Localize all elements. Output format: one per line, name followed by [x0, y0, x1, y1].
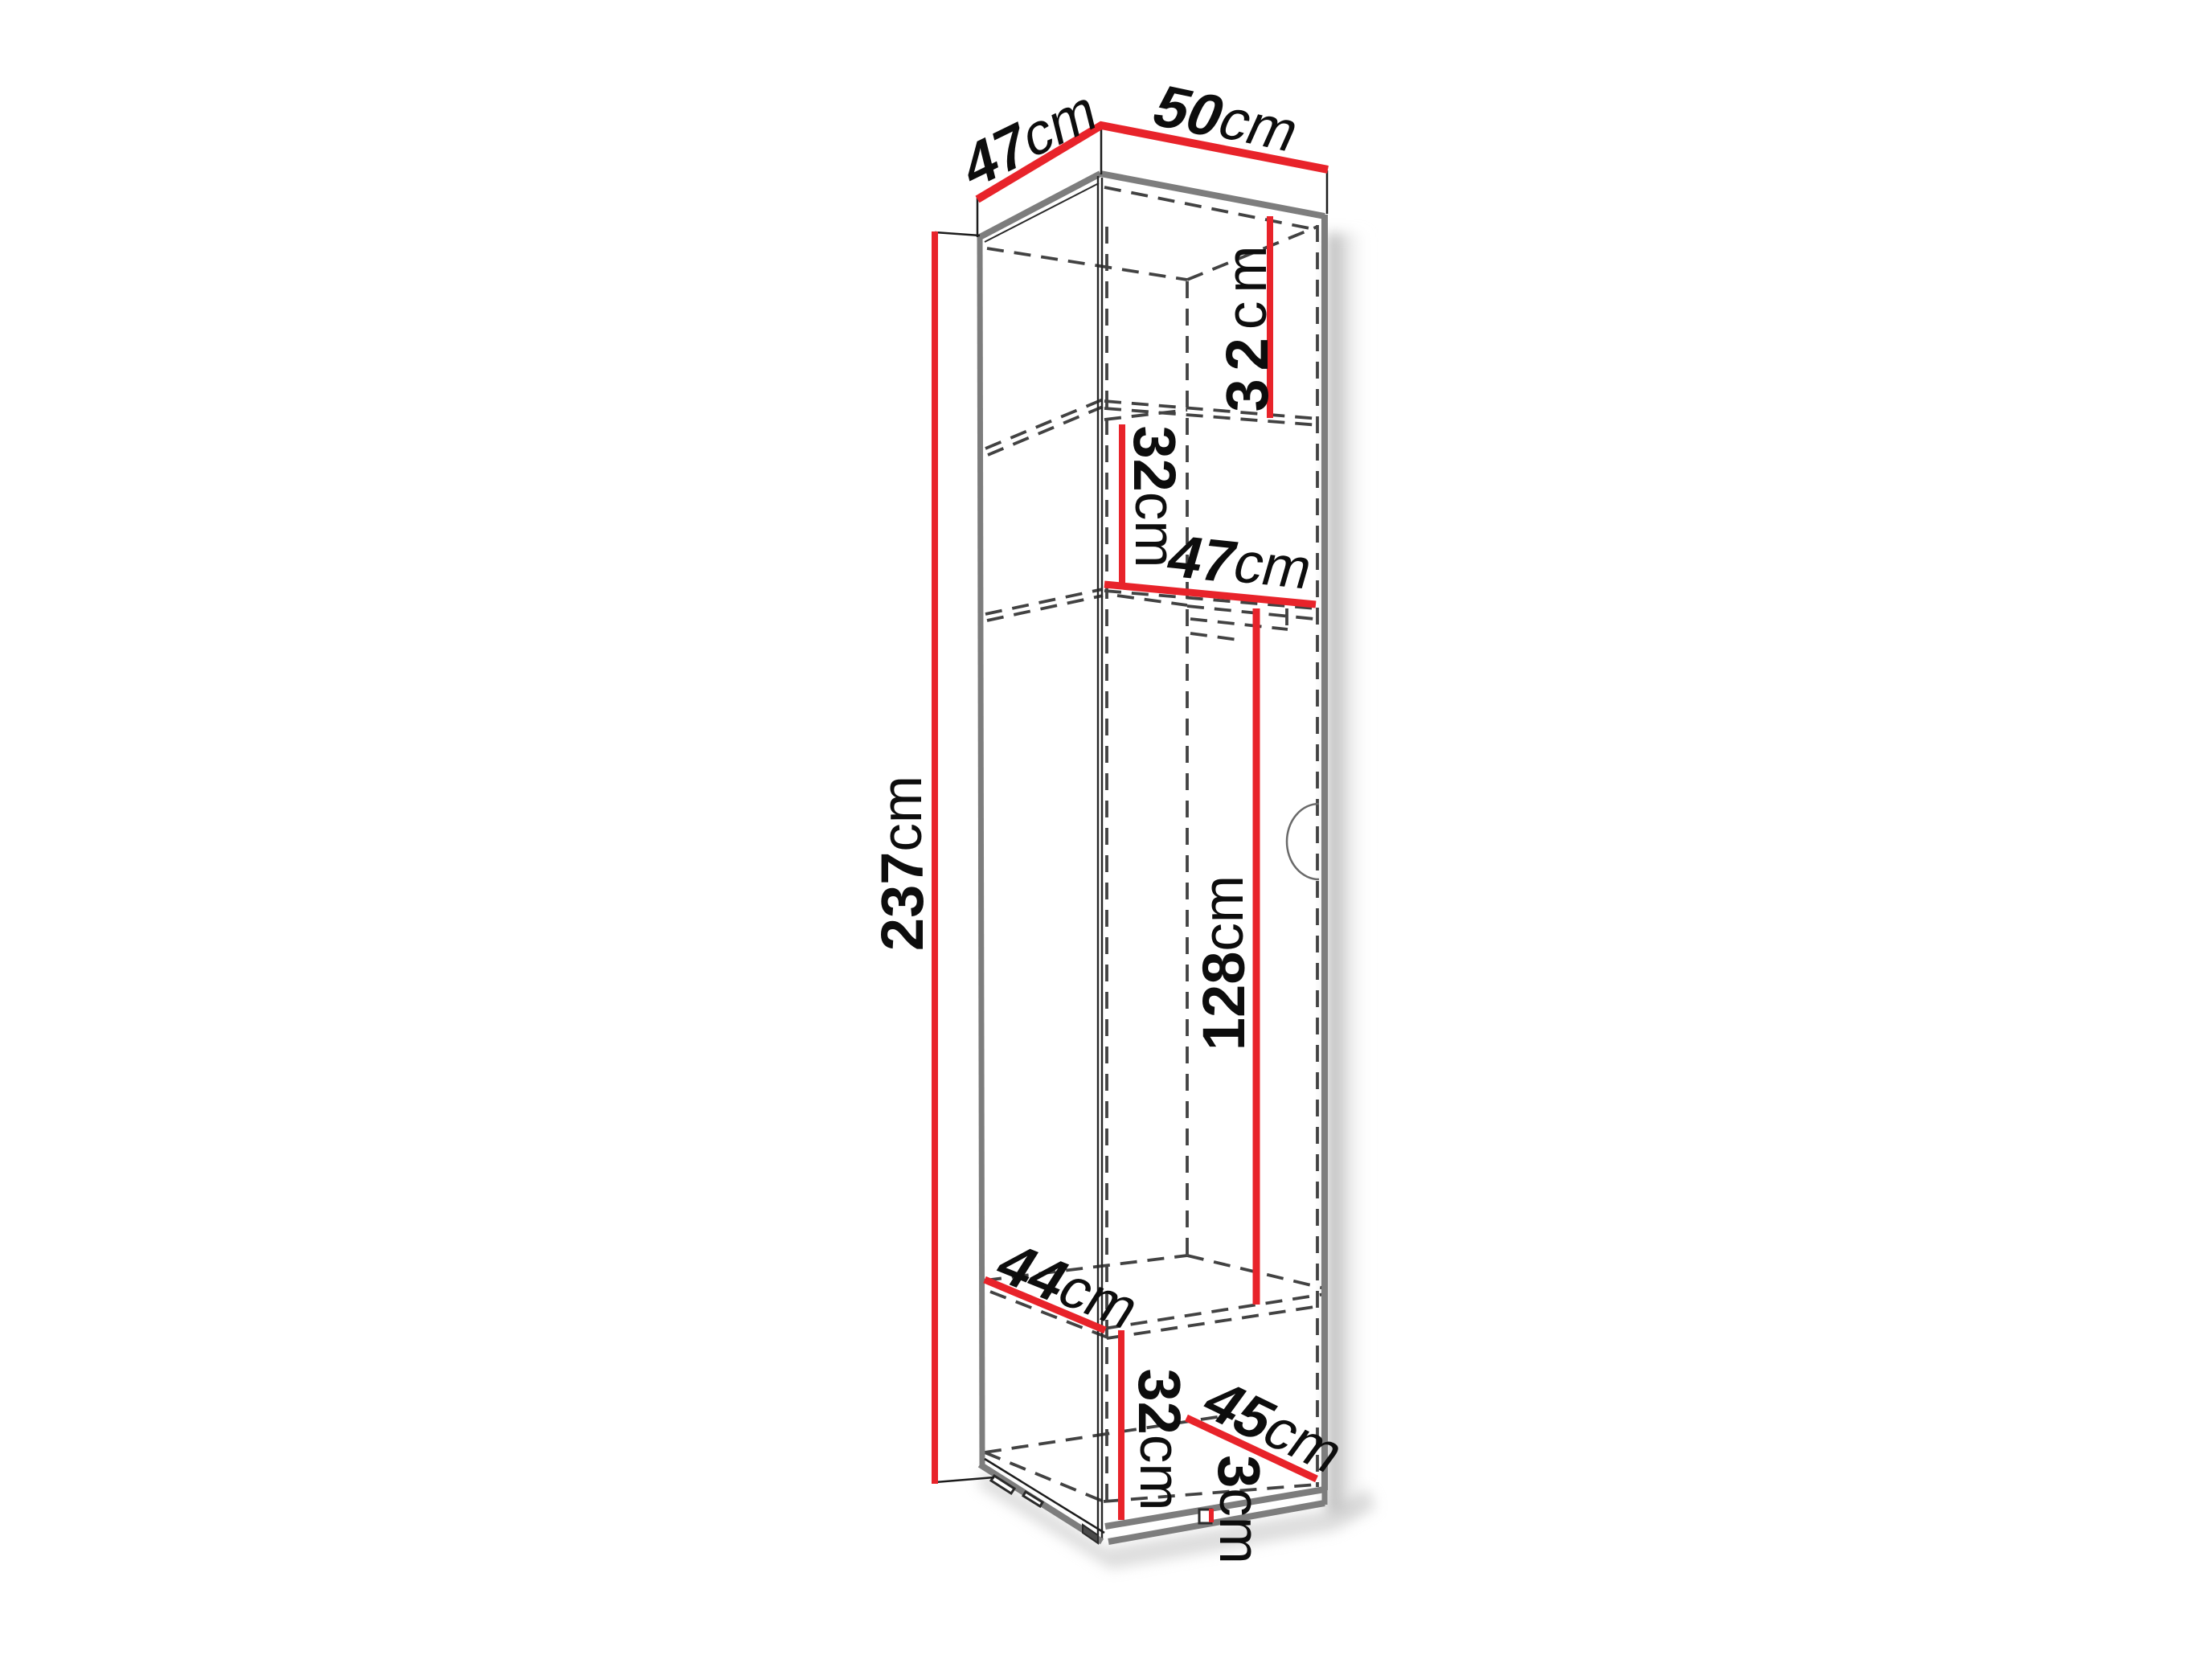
- svg-text:32cm: 32cm: [1127, 1369, 1194, 1511]
- svg-text:237cm: 237cm: [869, 776, 936, 951]
- svg-text:3cm: 3cm: [1206, 1455, 1273, 1564]
- svg-text:128cm: 128cm: [1190, 875, 1257, 1051]
- svg-text:32cm: 32cm: [1214, 238, 1280, 412]
